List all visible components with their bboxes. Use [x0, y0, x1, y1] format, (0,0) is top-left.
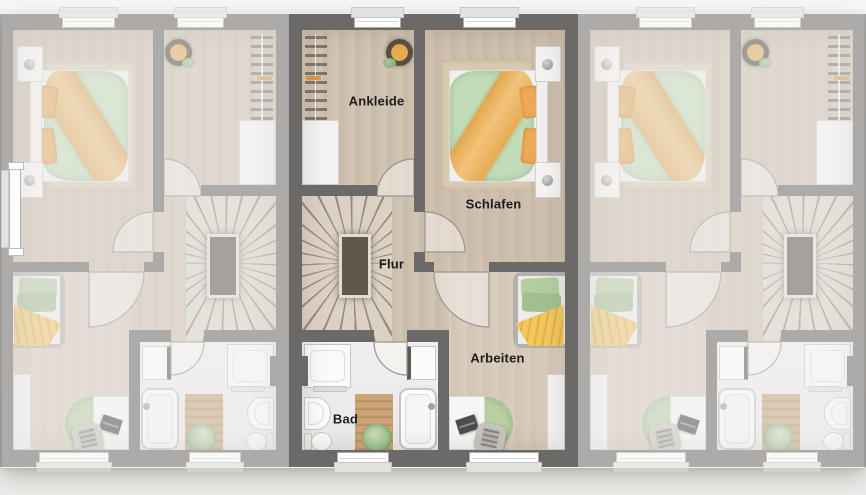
window-south-arbeiten: [469, 452, 539, 464]
door-arc-bad: [374, 342, 407, 375]
wall-ankleide-south: [302, 185, 377, 196]
unit-left-content: [0, 0, 289, 495]
wall-east: [577, 14, 590, 467]
wall-corridor-right: [489, 262, 565, 272]
wall-ankleide-schlafen: [153, 30, 164, 212]
window-south-arbeiten: [39, 452, 109, 464]
wall-ankleide-schlafen: [730, 30, 741, 212]
wall-bad-east: [706, 330, 717, 450]
unit-right: [577, 0, 866, 495]
window-north-2: [62, 16, 115, 28]
unit-middle-content: [289, 0, 578, 495]
wall-ankleide-south: [201, 185, 276, 196]
wall-east: [565, 14, 578, 467]
door-arc-schlafen: [113, 212, 153, 252]
wall-bad-east: [129, 330, 140, 450]
wall-ankleide-schlafen: [414, 30, 425, 212]
wall-corridor-right: [13, 262, 89, 272]
door-swing-arcs: [289, 0, 578, 495]
wall-west: [289, 14, 302, 467]
wall-north: [289, 14, 578, 30]
wall-west: [853, 14, 866, 467]
door-arc-ankleide: [741, 159, 778, 196]
wall-ankleide-south: [778, 185, 853, 196]
window-north-1: [354, 16, 401, 28]
door-arc-ankleide: [164, 159, 201, 196]
side-window-sill: [1, 170, 9, 248]
door-arc-schlafen: [690, 212, 730, 252]
floorplan-canvas: { "floorplan": { "view": "upper-floor-pl…: [0, 0, 866, 495]
wall-bad-north-left: [204, 330, 276, 342]
wall-bad-north-left: [781, 330, 853, 342]
window-north-2: [639, 16, 692, 28]
window-north-1: [754, 16, 801, 28]
door-arc-bad: [171, 342, 204, 375]
unit-left: [0, 0, 289, 495]
door-arc-arbeiten: [666, 272, 721, 327]
door-arc-schlafen: [425, 212, 465, 252]
window-north-1: [177, 16, 224, 28]
wall-corridor-left: [414, 262, 434, 272]
wall-bad-north-left: [302, 330, 374, 342]
door-arc-arbeiten: [89, 272, 144, 327]
unit-middle: [289, 0, 578, 495]
door-swing-arcs: [0, 0, 289, 495]
wall-bad-east: [438, 330, 449, 450]
door-arc-arbeiten: [434, 272, 489, 327]
window-south-bad: [337, 452, 389, 464]
door-arc-bad: [748, 342, 781, 375]
wall-north: [0, 14, 289, 30]
window-south-bad: [766, 452, 818, 464]
door-arc-ankleide: [377, 159, 414, 196]
wall-corridor-right: [590, 262, 666, 272]
side-window: [9, 166, 21, 252]
window-south-bad: [189, 452, 241, 464]
wall-corridor-left: [721, 262, 741, 272]
wall-north: [577, 14, 866, 30]
wall-west: [276, 14, 289, 467]
door-swing-arcs: [577, 0, 866, 495]
window-south-arbeiten: [616, 452, 686, 464]
unit-right-content: [577, 0, 866, 495]
wall-corridor-left: [144, 262, 164, 272]
window-north-2: [463, 16, 516, 28]
